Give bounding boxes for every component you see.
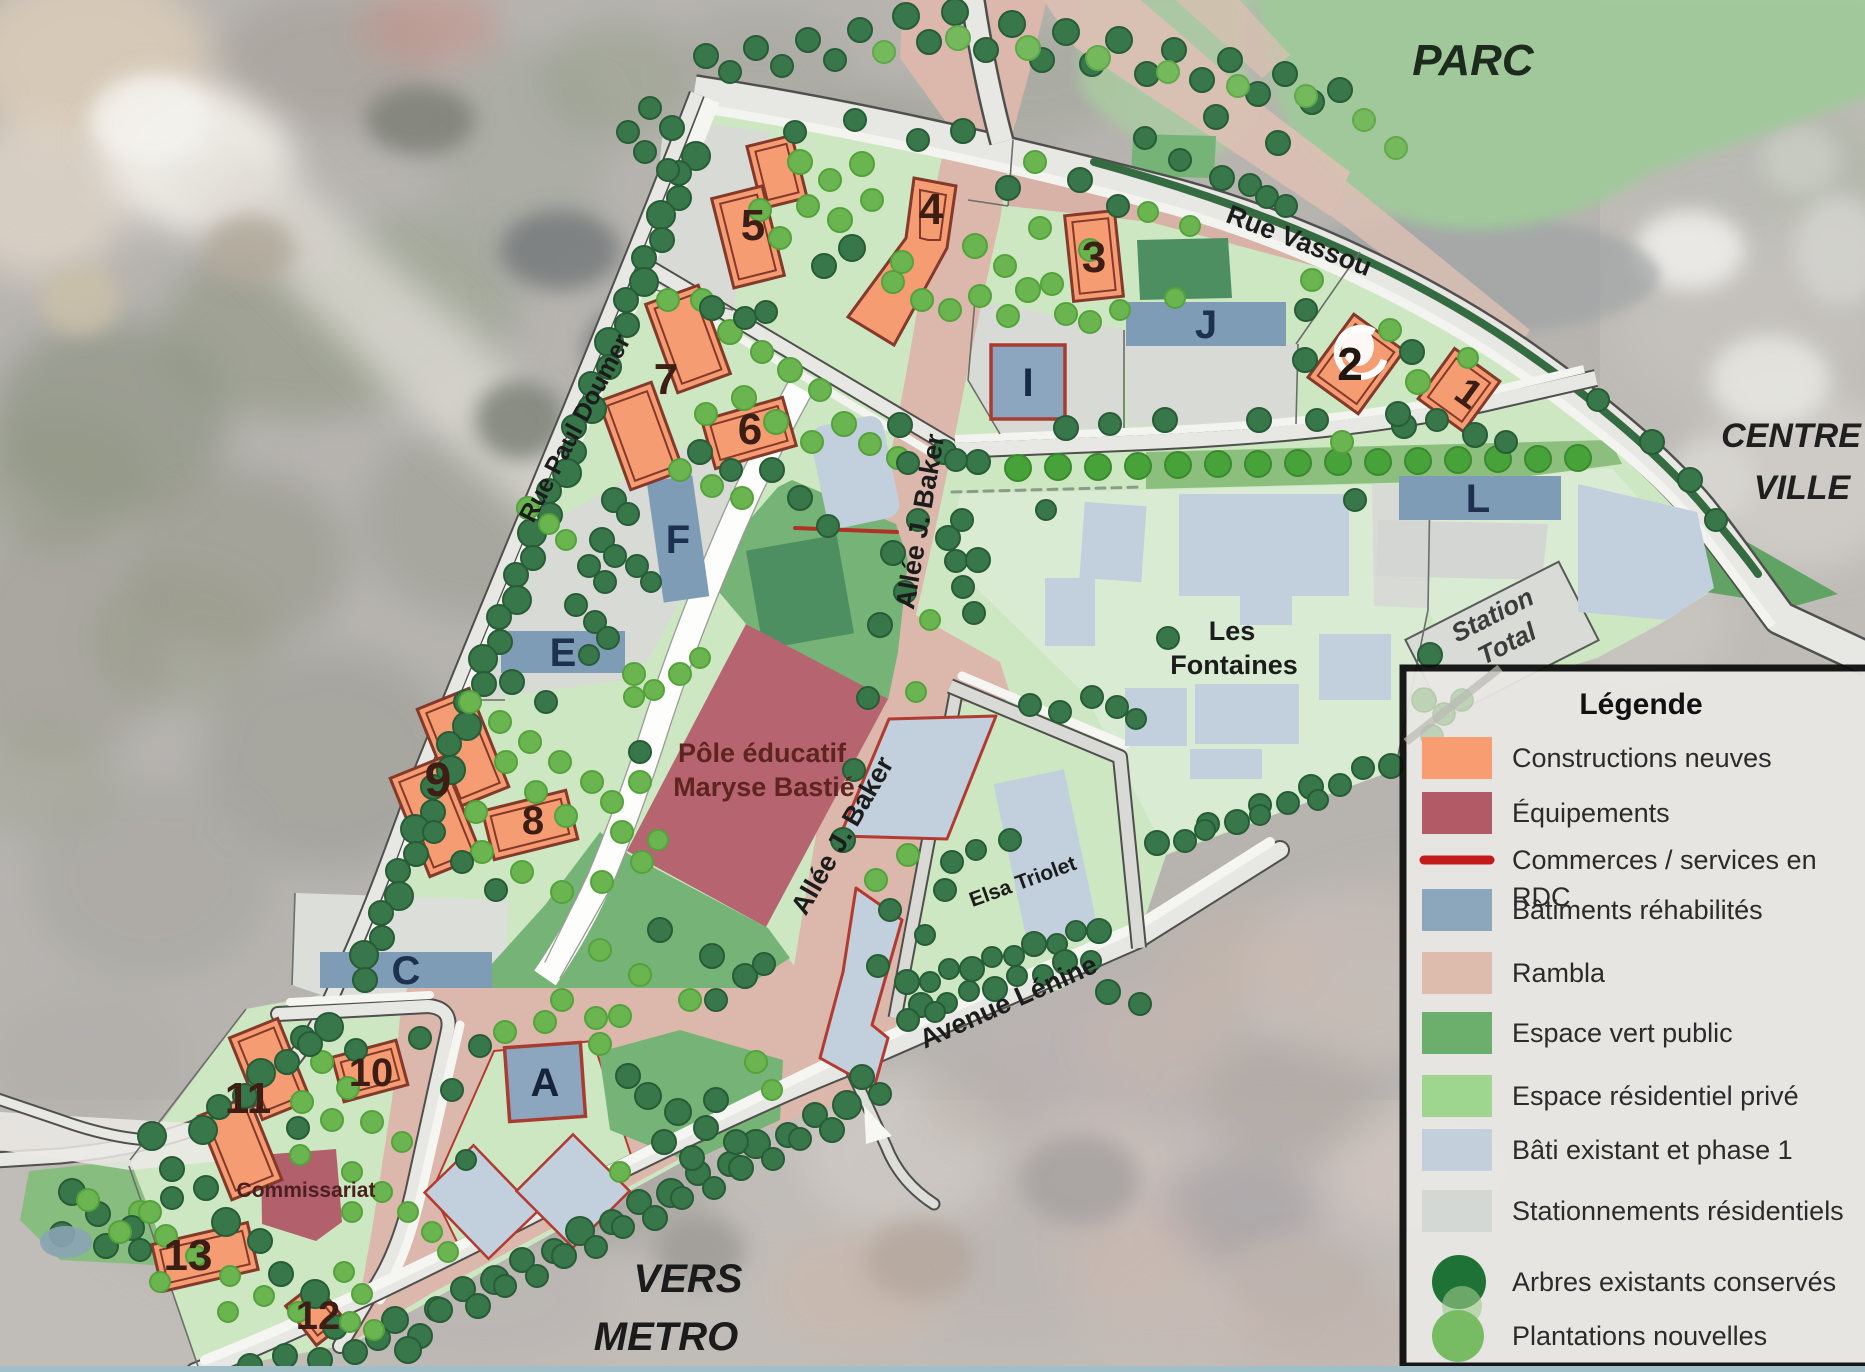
svg-text:Commissariat: Commissariat: [237, 1179, 376, 1202]
svg-text:Constructions neuves: Constructions neuves: [1512, 743, 1772, 773]
svg-text:4: 4: [919, 185, 944, 234]
svg-text:11: 11: [225, 1074, 272, 1123]
svg-text:F: F: [666, 518, 690, 562]
svg-text:Pôle éducatif: Pôle éducatif: [678, 738, 847, 768]
svg-text:VILLE: VILLE: [1754, 469, 1852, 507]
svg-text:A: A: [531, 1061, 560, 1105]
svg-text:CENTRE: CENTRE: [1721, 417, 1862, 455]
svg-text:Fontaines: Fontaines: [1170, 650, 1298, 680]
svg-text:6: 6: [738, 405, 762, 454]
svg-text:Plantations nouvelles: Plantations nouvelles: [1512, 1321, 1767, 1351]
svg-text:3: 3: [1082, 233, 1106, 282]
svg-text:Bâtiments réhabilités: Bâtiments réhabilités: [1512, 895, 1763, 925]
svg-text:7: 7: [654, 355, 678, 404]
svg-text:Équipements: Équipements: [1512, 798, 1670, 828]
svg-text:13: 13: [164, 1231, 213, 1280]
svg-text:Espace résidentiel privé: Espace résidentiel privé: [1512, 1081, 1799, 1111]
svg-text:Légende: Légende: [1579, 688, 1702, 721]
svg-text:Stationnements résidentiels: Stationnements résidentiels: [1512, 1196, 1844, 1226]
svg-text:J: J: [1195, 303, 1217, 347]
svg-text:I: I: [1022, 361, 1033, 405]
svg-text:Arbres existants conservés: Arbres existants conservés: [1512, 1267, 1836, 1297]
svg-text:12: 12: [296, 1294, 341, 1338]
svg-text:VERS: VERS: [634, 1257, 743, 1301]
svg-text:5: 5: [741, 201, 765, 250]
svg-text:10: 10: [349, 1051, 394, 1095]
svg-text:8: 8: [522, 799, 544, 843]
svg-text:Les: Les: [1209, 616, 1256, 646]
svg-text:Commerces / services en: Commerces / services en: [1512, 845, 1817, 875]
svg-text:METRO: METRO: [594, 1315, 738, 1359]
svg-text:PARC: PARC: [1412, 36, 1535, 85]
svg-text:Espace vert public: Espace vert public: [1512, 1018, 1733, 1048]
svg-text:E: E: [550, 631, 577, 675]
svg-text:Rambla: Rambla: [1512, 958, 1606, 988]
svg-text:C: C: [392, 949, 421, 993]
svg-text:L: L: [1466, 477, 1490, 521]
svg-text:9: 9: [425, 754, 452, 807]
svg-text:Maryse Bastié: Maryse Bastié: [673, 772, 855, 802]
svg-text:Bâti existant et phase 1: Bâti existant et phase 1: [1512, 1135, 1793, 1165]
svg-text:2: 2: [1337, 338, 1363, 390]
